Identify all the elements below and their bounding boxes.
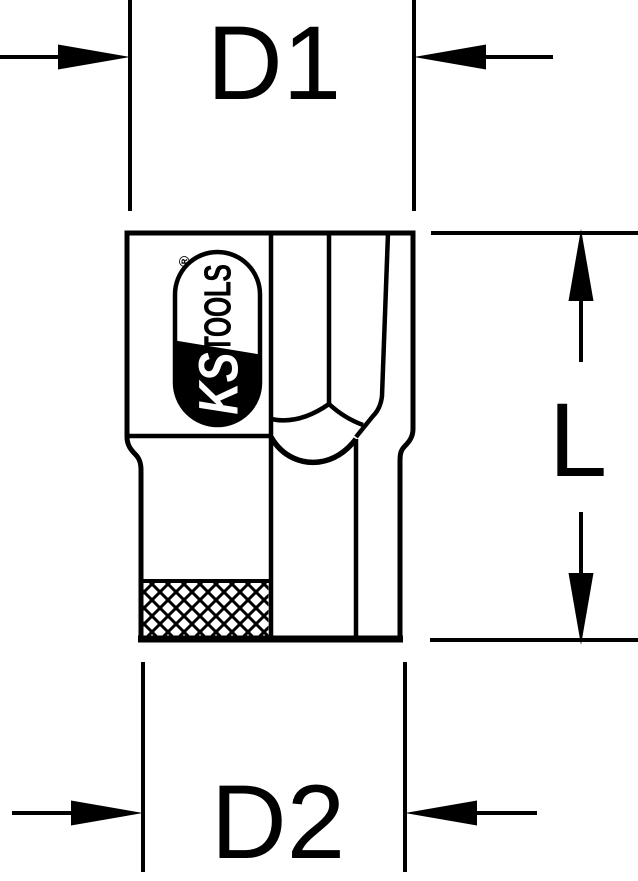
- chamfer-arc-mid: [329, 404, 363, 425]
- l-arrowhead-down-icon: [569, 573, 594, 645]
- socket-dimension-diagram: D1 KS TOOLS ®: [0, 0, 638, 881]
- d2-arrowhead-left-icon: [405, 801, 477, 826]
- l-label: L: [549, 382, 607, 499]
- socket-body: [125, 231, 416, 639]
- d1-arrowhead-left-icon: [414, 45, 486, 70]
- logo-tools-text: TOOLS: [196, 265, 239, 353]
- technical-drawing-socket: D1 KS TOOLS ®: [0, 0, 638, 881]
- knurling-crosshatch: [144, 583, 269, 636]
- hex-facet-line-3: [356, 233, 388, 437]
- d1-label: D1: [207, 5, 341, 122]
- d1-arrowhead-right-icon: [58, 45, 130, 70]
- logo-registered-mark: ®: [177, 256, 194, 267]
- l-arrowhead-up-icon: [569, 229, 594, 301]
- chamfer-swoosh: [271, 437, 356, 462]
- d2-label: D2: [211, 764, 345, 881]
- d2-arrowhead-right-icon: [71, 801, 143, 826]
- chamfer-arc-left: [271, 404, 329, 420]
- socket-right-outline: [400, 231, 413, 638]
- logo-ks-text: KS: [187, 352, 250, 414]
- ks-tools-logo: KS TOOLS ®: [175, 252, 260, 425]
